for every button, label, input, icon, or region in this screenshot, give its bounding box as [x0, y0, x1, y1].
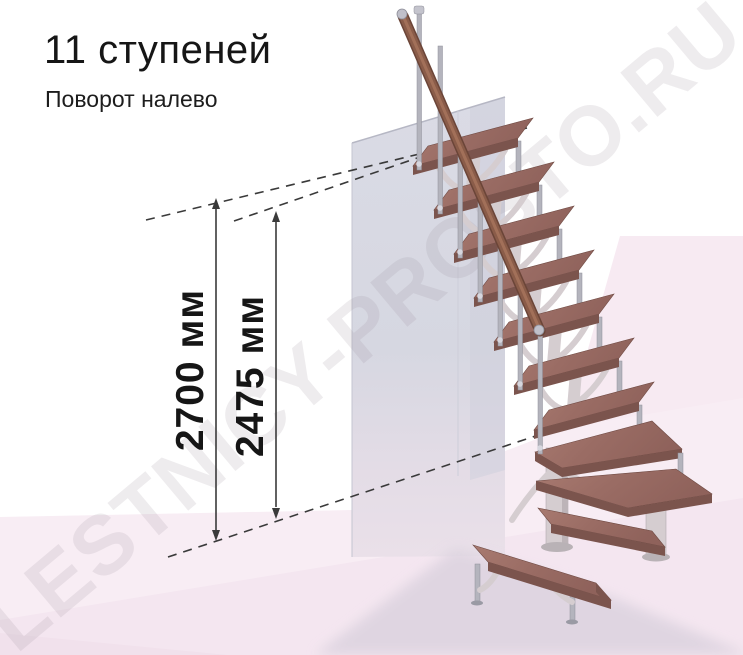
page-subtitle: Поворот налево: [45, 86, 218, 113]
dimension-label-2475: 2475 мм: [229, 295, 272, 457]
dimension-label-2700: 2700 мм: [169, 289, 212, 451]
handrail-end-cap: [534, 325, 544, 335]
page-title: 11 ступеней: [44, 28, 272, 72]
leg-foot: [471, 601, 483, 606]
staircase-diagram-page: LESTNICY-PROSTO.RU: [0, 0, 743, 655]
leg-foot: [566, 620, 578, 625]
column-base-flange: [541, 542, 573, 552]
step-leg: [475, 564, 480, 602]
handrail-top-cap: [397, 9, 407, 19]
baluster-cap: [414, 6, 424, 14]
